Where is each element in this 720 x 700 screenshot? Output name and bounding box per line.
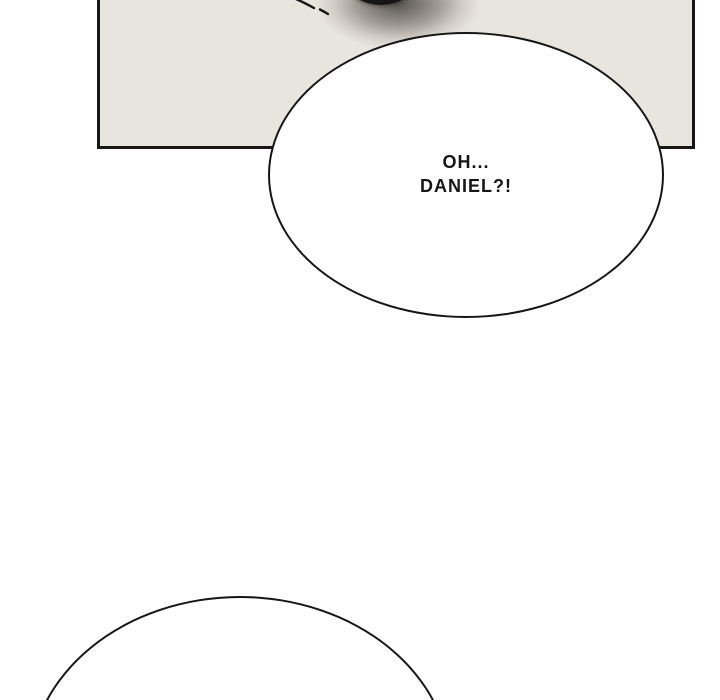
speech-line-1: OH...: [420, 150, 512, 174]
speech-line-2: DANIEL?!: [420, 174, 512, 198]
speech-text: OH... DANIEL?!: [420, 150, 512, 198]
flinch-marks-icon: [290, 0, 340, 20]
comic-page: OH... DANIEL?!: [0, 0, 720, 700]
speech-bubble-bottom-partial: [28, 596, 452, 700]
speech-bubble-main: OH... DANIEL?!: [268, 32, 664, 318]
